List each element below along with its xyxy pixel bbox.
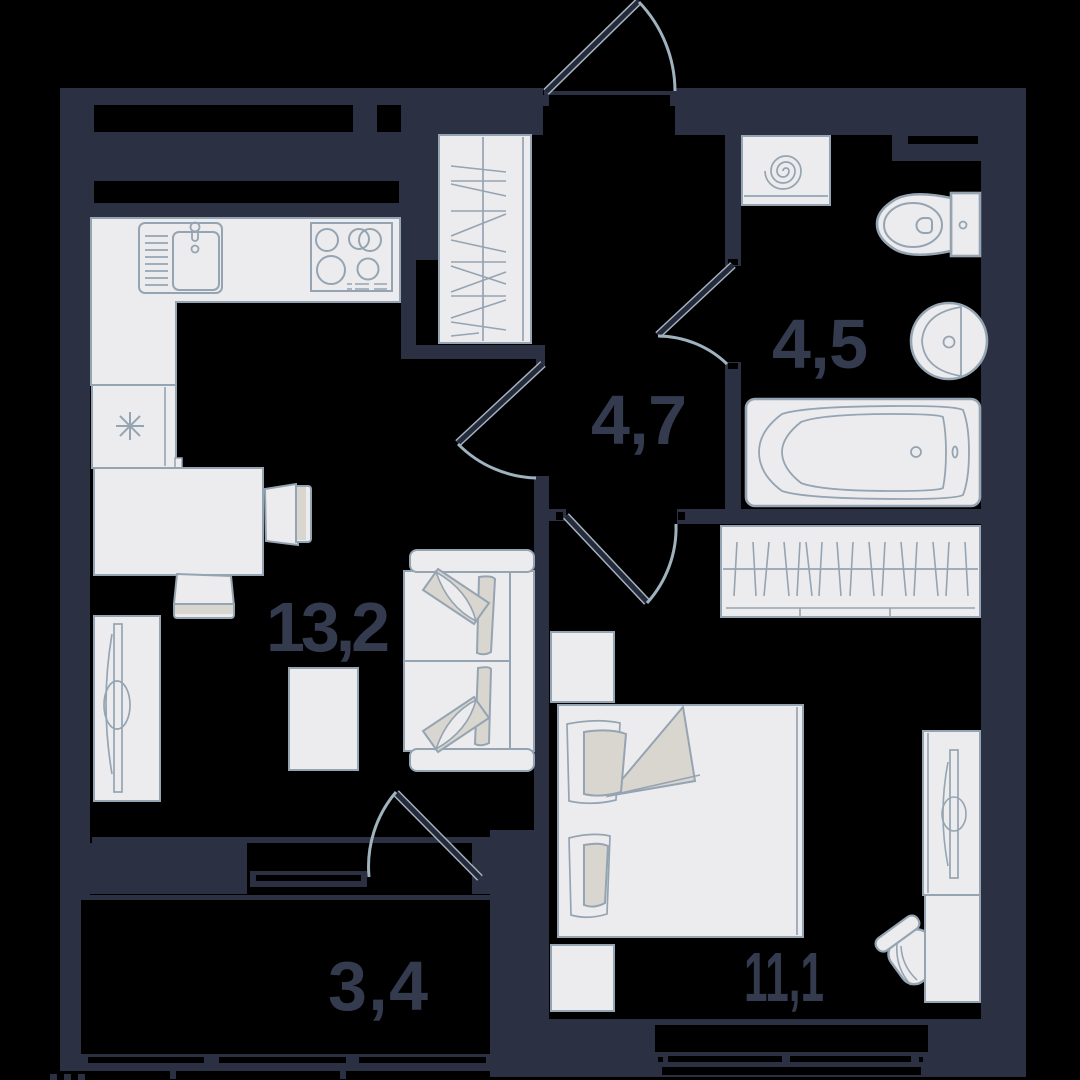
- svg-text:3,4: 3,4: [328, 947, 428, 1025]
- svg-text:4,7: 4,7: [591, 381, 687, 459]
- svg-text:4,5: 4,5: [772, 305, 868, 383]
- svg-text:13,2: 13,2: [266, 588, 390, 666]
- svg-text:11,1: 11,1: [744, 938, 824, 1016]
